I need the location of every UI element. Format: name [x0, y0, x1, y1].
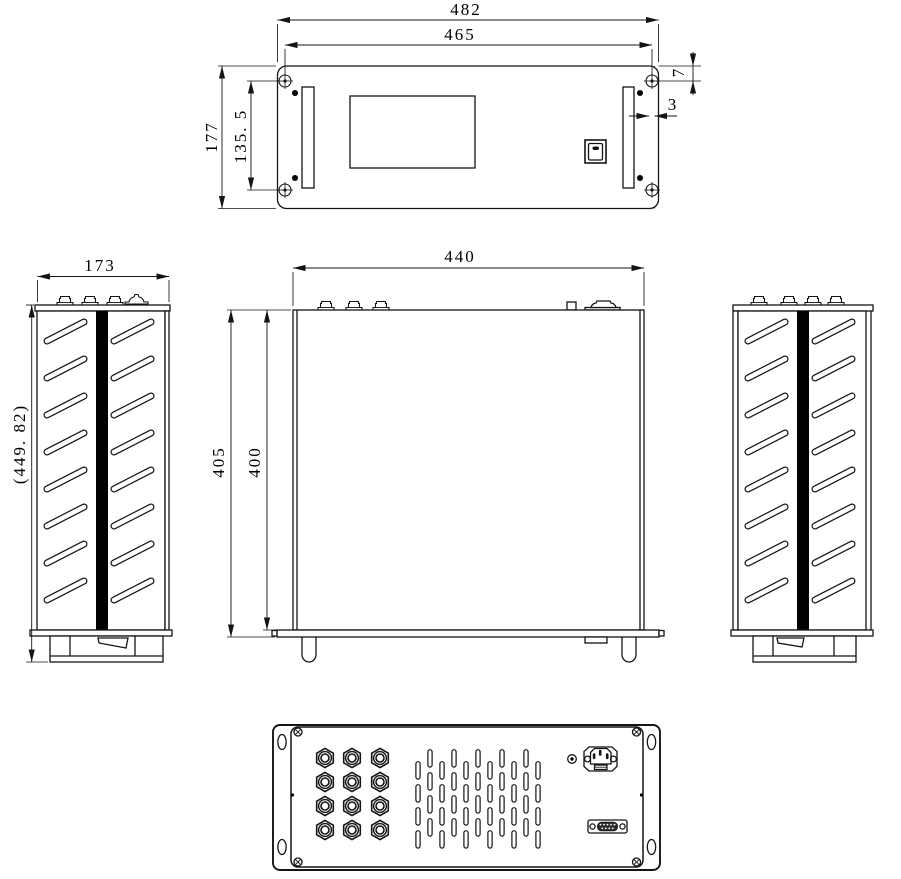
top-fitting: [751, 297, 767, 306]
pin-slot: [593, 753, 596, 759]
front-foot: [302, 637, 316, 662]
left-handle-bracket: [302, 87, 314, 188]
chassis-body: [293, 310, 644, 630]
dim-label-depth: 173: [84, 256, 116, 275]
power-inlet: [584, 747, 617, 771]
dim-label-flange-offset: 7: [669, 67, 688, 78]
top-lip: [733, 305, 873, 311]
top-fitting: [805, 297, 821, 306]
dim-label-body-width: 440: [444, 247, 476, 266]
top-fitting: [346, 302, 362, 311]
edge-dot: [291, 793, 294, 796]
rear-edge-strip: [165, 311, 169, 630]
dim-label-overall-depth: 405: [209, 446, 228, 478]
base-foot: [30, 630, 172, 662]
power-switch: [585, 140, 606, 163]
dim-label-panel-height: 177: [202, 121, 221, 153]
left-side-view: [30, 295, 172, 663]
front-panel: [278, 66, 659, 209]
drawing-canvas: 482 465 177 135. 5 7 3: [0, 0, 901, 879]
panel-screw: [633, 728, 641, 736]
right-side-view: [731, 297, 873, 663]
top-fitting: [318, 302, 334, 311]
latch-notch: [585, 637, 607, 643]
center-trim-stripe: [797, 311, 809, 630]
bracket-screw: [637, 175, 643, 181]
panel-screw: [633, 858, 641, 866]
bracket-screw: [292, 175, 298, 181]
pin-slot: [599, 750, 602, 756]
ear-edge: [659, 631, 664, 637]
panel-screw: [294, 858, 302, 866]
center-trim-stripe: [96, 311, 108, 630]
top-dome-fitting: [125, 295, 148, 305]
small-post: [567, 302, 576, 310]
dim-label-body-depth: 400: [245, 446, 264, 478]
bracket-screw: [637, 90, 643, 96]
top-fitting: [107, 297, 123, 306]
base-foot: [731, 630, 873, 662]
top-fitting: [82, 297, 98, 306]
ear-edge: [272, 631, 277, 637]
db9-shell: [598, 822, 618, 831]
panel-screw: [294, 728, 302, 736]
top-lip: [35, 305, 170, 311]
top-fitting: [781, 297, 797, 306]
top-fitting: [828, 297, 844, 306]
pin-slot: [606, 753, 609, 759]
front-panel-edge: [277, 630, 659, 637]
dim-label-flange-gap: 3: [668, 95, 679, 114]
rear-view: [273, 725, 660, 870]
top-view: [272, 301, 664, 662]
top-fitting: [57, 297, 73, 306]
dim-label-hole-spacing: 135. 5: [231, 109, 250, 164]
dome-connector: [585, 301, 620, 310]
bracket-screw: [292, 90, 298, 96]
dim-label-overall-width: 482: [450, 0, 482, 19]
top-fitting: [373, 302, 389, 311]
front-foot: [622, 637, 636, 662]
dim-label-mounting-width: 465: [444, 25, 476, 44]
edge-dot: [640, 793, 643, 796]
right-handle-bracket: [623, 87, 634, 188]
dim-label-overall-height: (449. 82): [10, 404, 29, 484]
front-view: [277, 66, 660, 209]
front-edge-strip: [733, 311, 738, 630]
engineering-drawing-sheet: 482 465 177 135. 5 7 3: [0, 0, 901, 879]
